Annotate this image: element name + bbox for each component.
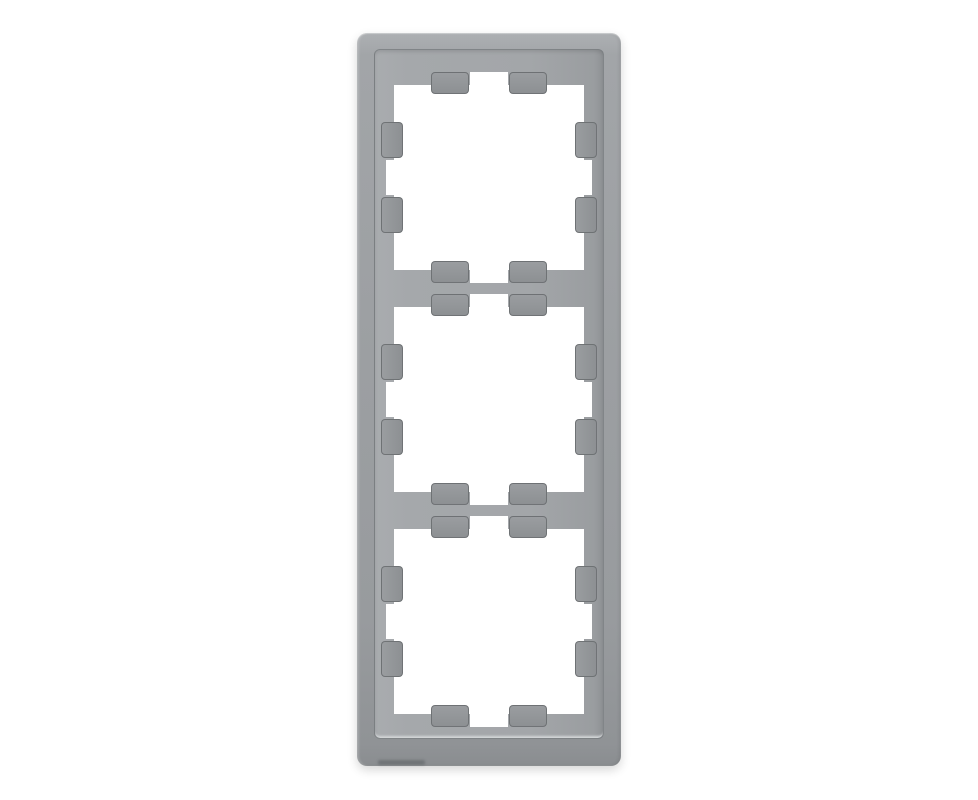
claw-tab bbox=[509, 72, 547, 94]
opening-cutout bbox=[381, 294, 597, 505]
embossed-brand-mark bbox=[378, 760, 425, 765]
claw-tab bbox=[381, 566, 403, 602]
switch-frame bbox=[357, 33, 621, 766]
claw-tab bbox=[575, 197, 597, 233]
claw-tab bbox=[575, 419, 597, 455]
claw-tab bbox=[575, 641, 597, 677]
opening-1 bbox=[381, 72, 597, 283]
claw-tab bbox=[509, 705, 547, 727]
claw-tab bbox=[431, 261, 469, 283]
product-photo bbox=[0, 0, 978, 800]
claw-tab bbox=[431, 483, 469, 505]
claw-tab bbox=[431, 516, 469, 538]
opening-cutout bbox=[381, 72, 597, 283]
opening-3 bbox=[381, 516, 597, 727]
claw-tab bbox=[381, 641, 403, 677]
claw-tab bbox=[509, 261, 547, 283]
claw-tab bbox=[381, 122, 403, 158]
claw-tab bbox=[381, 197, 403, 233]
claw-tab bbox=[431, 294, 469, 316]
claw-tab bbox=[381, 419, 403, 455]
claw-tab bbox=[575, 566, 597, 602]
opening-cutout bbox=[381, 516, 597, 727]
claw-tab bbox=[509, 483, 547, 505]
claw-tab bbox=[509, 516, 547, 538]
claw-tab bbox=[431, 705, 469, 727]
claw-tab bbox=[381, 344, 403, 380]
claw-tab bbox=[431, 72, 469, 94]
claw-tab bbox=[575, 344, 597, 380]
claw-tab bbox=[509, 294, 547, 316]
claw-tab bbox=[575, 122, 597, 158]
opening-2 bbox=[381, 294, 597, 505]
